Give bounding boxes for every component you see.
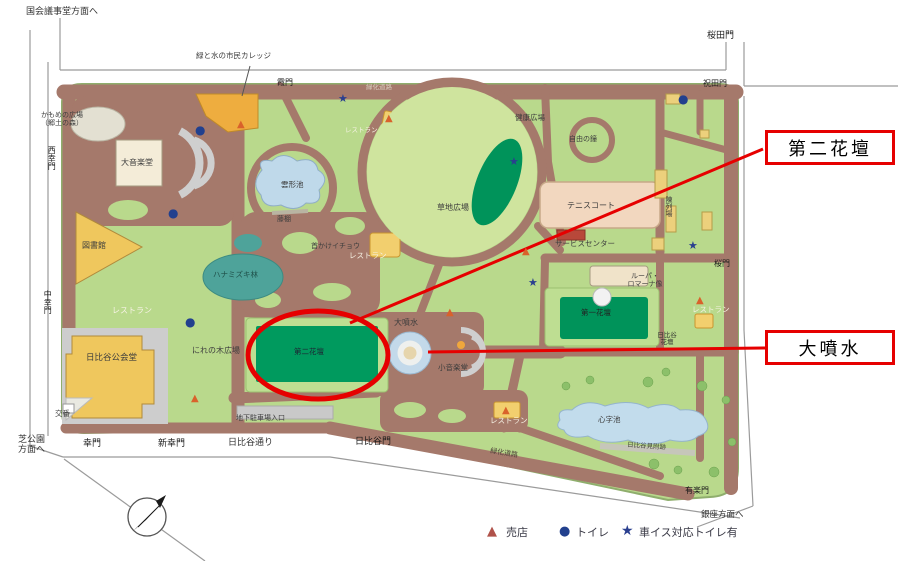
- label-toshokan: 図書館: [82, 241, 106, 250]
- label-daionkakudo: 大音楽堂: [121, 158, 153, 167]
- callout-daini-kadan-text: 第二花壇: [788, 135, 872, 161]
- street-ryokuka-doro-top: 緑化道路: [366, 84, 392, 91]
- gate-hibiyamon: 日比谷門: [355, 437, 391, 447]
- exhibition-area-building: [652, 238, 664, 250]
- label-nirenoki: にれの木広場: [192, 346, 240, 355]
- label-daifunsui: 大噴水: [394, 318, 418, 327]
- label-hibiya-kadan-line2: 花壇: [652, 339, 682, 346]
- label-kubikake-icho: 首かけイチョウ: [311, 242, 360, 250]
- small-building: [700, 130, 709, 138]
- label-kamome-line2: （郷土の森）: [30, 119, 94, 127]
- gate-iwaidamon: 祝田門: [703, 79, 727, 88]
- shop-marker: ▲: [237, 120, 245, 130]
- direction-kokkaigijido: 国会議事堂方面へ: [26, 7, 98, 17]
- label-lupa-line2: ロマーナ像: [618, 280, 672, 288]
- label-hibiya-kadan: 日比谷 花壇: [652, 332, 682, 347]
- direction-shibakoen: 芝公園 方面へ: [18, 435, 45, 456]
- label-chinretsujo: 陳列場: [665, 196, 673, 217]
- label-shinji-ike: 心字池: [598, 416, 621, 425]
- shop-marker: ▲: [696, 296, 704, 306]
- label-kenko-hiroba: 健康広場: [515, 114, 545, 123]
- gate-nakasaiwaimon: 中幸門: [43, 290, 52, 314]
- gate-shinsaiwaimon: 新幸門: [158, 439, 185, 449]
- small-concert-hall-stage: [457, 341, 465, 349]
- label-daini-kadan: 第二花壇: [294, 348, 324, 357]
- label-restaurant-east: レストラン: [692, 306, 730, 315]
- toilet-marker: ●: [195, 124, 205, 136]
- restaurant-east-building: [695, 314, 713, 328]
- wheelchair-toilet-marker: ★: [338, 93, 348, 104]
- wheelchair-legend-icon: ★: [621, 524, 634, 538]
- label-fujidana: 藤棚: [277, 215, 291, 223]
- toilet-marker: ●: [678, 93, 688, 105]
- direction-ginza: 銀座方面へ: [701, 511, 744, 521]
- label-lupa-line1: ルーパ・: [618, 272, 672, 280]
- shop-marker: ▲: [385, 114, 393, 124]
- label-college: 緑と水の市民カレッジ: [196, 52, 271, 61]
- label-koban: 交番: [55, 410, 70, 419]
- gate-saiwaimon: 幸門: [83, 439, 101, 449]
- first-flower-bed-fountain: [593, 288, 611, 306]
- dogwood-grove-shape: [234, 234, 262, 252]
- gate-sakuradamon: 桜田門: [707, 31, 734, 41]
- toilet-legend-icon: ●: [559, 525, 570, 538]
- callout-daifunsui-text: 大噴水: [799, 335, 862, 361]
- wisteria-trellis-shape: [272, 211, 308, 213]
- label-daiichi-kadan: 第一花壇: [581, 309, 611, 318]
- label-shoongakudo: 小音楽堂: [438, 364, 468, 373]
- gate-yurakumon: 有楽門: [685, 486, 709, 495]
- shop-marker: ▲: [522, 247, 530, 257]
- callout-daifunsui: 大噴水: [765, 330, 895, 365]
- compass-rose: [128, 495, 166, 536]
- shop-legend-icon: ▲: [487, 525, 497, 538]
- wheelchair-toilet-marker: ★: [509, 156, 519, 167]
- label-kamome-plaza: かもめの広場 （郷土の森）: [30, 111, 94, 127]
- gate-nishisaiwaimon: 西幸門: [47, 146, 56, 170]
- shop-marker: ▲: [191, 394, 199, 404]
- label-kumogata-ike: 雲形池: [281, 181, 304, 190]
- hibiya-park-map: 国会議事堂方面へ 芝公園 方面へ 銀座方面へ 日比谷通り 緑化道路 緑化道路 霞…: [0, 0, 900, 561]
- label-kamome-line1: かもめの広場: [30, 111, 94, 119]
- gate-kasumimon: 霞門: [277, 78, 293, 87]
- shop-marker: ▲: [446, 308, 454, 318]
- direction-shibakoen-line2: 方面へ: [18, 445, 45, 455]
- direction-shibakoen-line1: 芝公園: [18, 435, 45, 445]
- label-lupa-romana: ルーパ・ ロマーナ像: [618, 272, 672, 288]
- label-kusachi-hiroba: 草地広場: [437, 203, 469, 212]
- toilet-marker: ●: [185, 316, 195, 328]
- label-hanamizuki: ハナミズキ林: [213, 271, 258, 280]
- small-building: [702, 212, 712, 230]
- wheelchair-legend-label: 車イス対応トイレ有: [639, 527, 738, 538]
- label-restaurant-center: レストラン: [349, 252, 387, 261]
- toilet-marker: ●: [168, 207, 178, 219]
- label-restaurant-nw: レストラン: [112, 306, 152, 315]
- callout-daini-kadan: 第二花壇: [765, 130, 895, 165]
- shop-marker: ▲: [502, 406, 510, 416]
- label-jiyu-no-kane: 自由の鐘: [569, 135, 597, 143]
- gate-sakuramon: 桜門: [714, 259, 730, 268]
- label-restaurant-north: レストラン: [345, 127, 378, 134]
- park-map-canvas: [0, 0, 900, 561]
- wheelchair-toilet-marker: ★: [528, 277, 538, 288]
- label-tennis-court: テニスコート: [567, 201, 615, 210]
- label-restaurant-south: レストラン: [490, 417, 528, 426]
- great-fountain-center: [404, 347, 417, 360]
- label-kokaido: 日比谷公会堂: [86, 354, 137, 364]
- label-service-center: サービスセンター: [555, 240, 615, 249]
- toilet-legend-label: トイレ: [576, 527, 609, 538]
- shop-legend-label: 売店: [506, 527, 528, 538]
- street-hibiya-dori: 日比谷通り: [228, 438, 273, 448]
- wheelchair-toilet-marker: ★: [688, 240, 698, 251]
- label-chika-chushajo: 地下駐車場入口: [236, 414, 285, 422]
